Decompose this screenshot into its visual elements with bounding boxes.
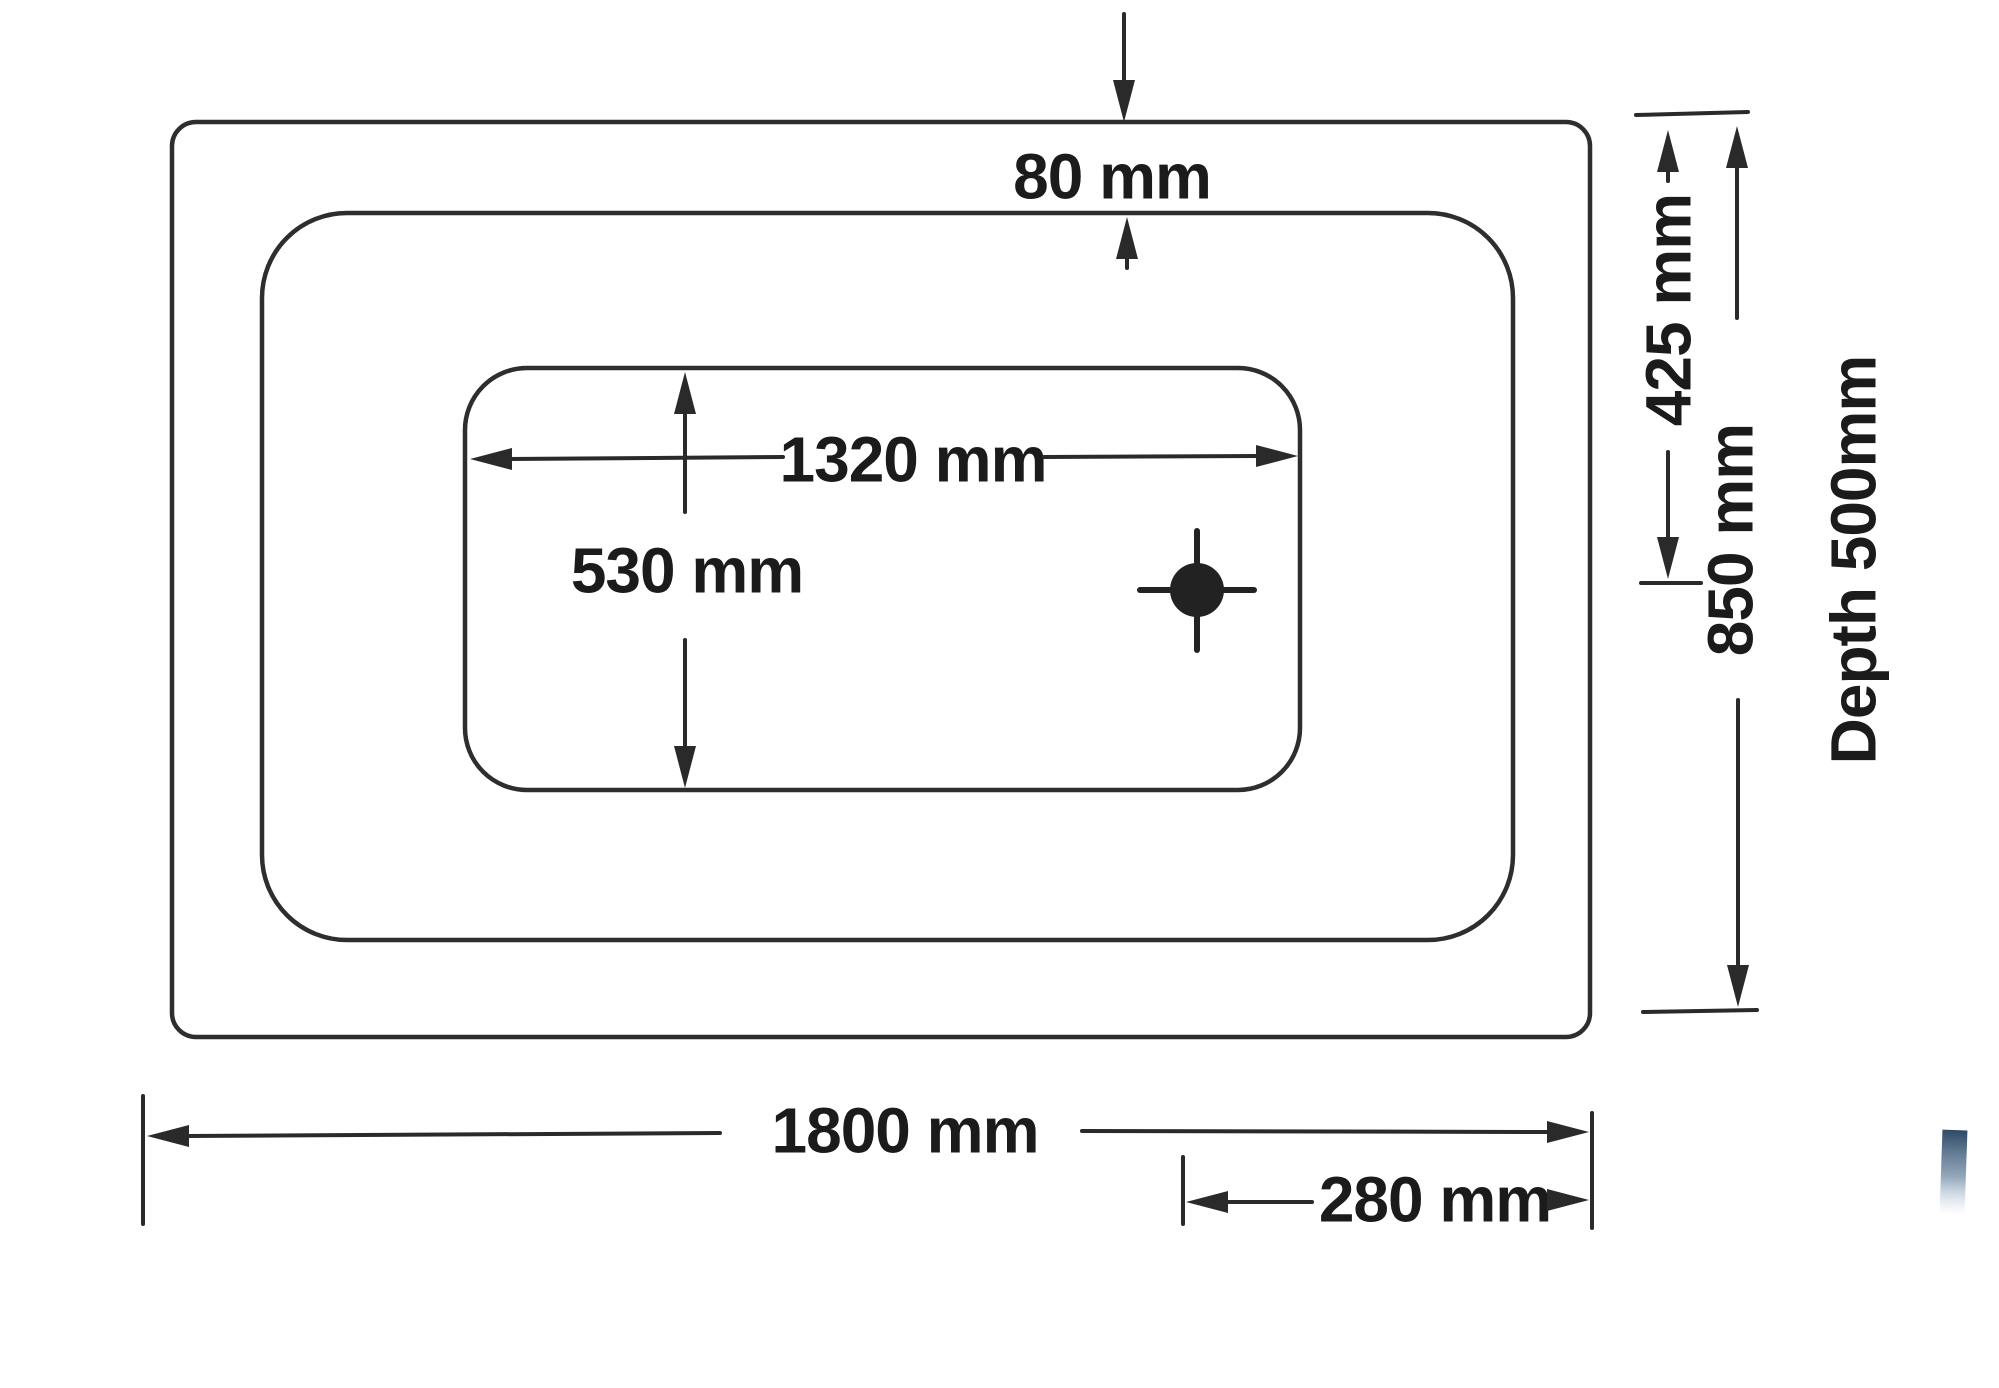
- tub-outline: [172, 122, 1590, 1037]
- drain-marker: [1140, 531, 1254, 650]
- arrow-up-icon: [1726, 126, 1748, 168]
- dim-basin-length: 1320 mm: [470, 423, 1298, 495]
- dim-rim-width-top: 80 mm: [1013, 14, 1211, 268]
- ink-smudge-artifact: [1940, 1130, 1968, 1216]
- dim-drain-offset: 280 mm: [1183, 1157, 1589, 1235]
- dim-label-edge-to-drain: 425 mm: [1632, 194, 1704, 426]
- dimension-line: [1082, 1131, 1549, 1132]
- arrow-up-icon: [1657, 130, 1679, 172]
- dim-label-depth: Depth 500mm: [1817, 356, 1889, 765]
- arrow-right-icon: [1547, 1189, 1589, 1211]
- dim-label-rim-width: 80 mm: [1013, 140, 1211, 212]
- dim-label-overall-width: 850 mm: [1694, 424, 1766, 656]
- dim-label-basin-width: 530 mm: [571, 534, 803, 606]
- arrow-left-icon: [147, 1125, 189, 1147]
- tub-outer-rim-edge: [172, 122, 1590, 1037]
- arrow-left-icon: [1186, 1191, 1228, 1213]
- drain-hole-icon: [1170, 563, 1224, 617]
- dim-right-side: 425 mm 850 mm Depth 500mm: [1632, 112, 1889, 1012]
- arrow-up-icon: [674, 372, 696, 414]
- dimension-line: [185, 1133, 720, 1136]
- dimension-line: [1044, 456, 1260, 457]
- arrow-down-icon: [1113, 80, 1135, 122]
- dimension-line: [508, 457, 783, 459]
- extension-line: [1643, 1010, 1757, 1012]
- bathtub-dimension-diagram: 80 mm 1320 mm 530 mm 425 mm: [0, 0, 1999, 1388]
- dim-label-overall-length: 1800 mm: [772, 1094, 1039, 1166]
- arrow-up-icon: [1116, 217, 1138, 259]
- tub-inner-rim-edge: [262, 213, 1513, 940]
- arrow-right-icon: [1547, 1121, 1589, 1143]
- dim-basin-width: 530 mm: [571, 372, 803, 788]
- arrow-left-icon: [470, 448, 512, 470]
- arrow-down-icon: [674, 746, 696, 788]
- dim-label-drain-offset: 280 mm: [1319, 1163, 1551, 1235]
- extension-line-top: [1636, 112, 1748, 115]
- arrow-down-icon: [1657, 537, 1679, 579]
- dim-label-basin-length: 1320 mm: [780, 423, 1047, 495]
- arrow-down-icon: [1727, 965, 1749, 1007]
- arrow-right-icon: [1256, 445, 1298, 467]
- diagram-canvas: 80 mm 1320 mm 530 mm 425 mm: [0, 0, 1999, 1388]
